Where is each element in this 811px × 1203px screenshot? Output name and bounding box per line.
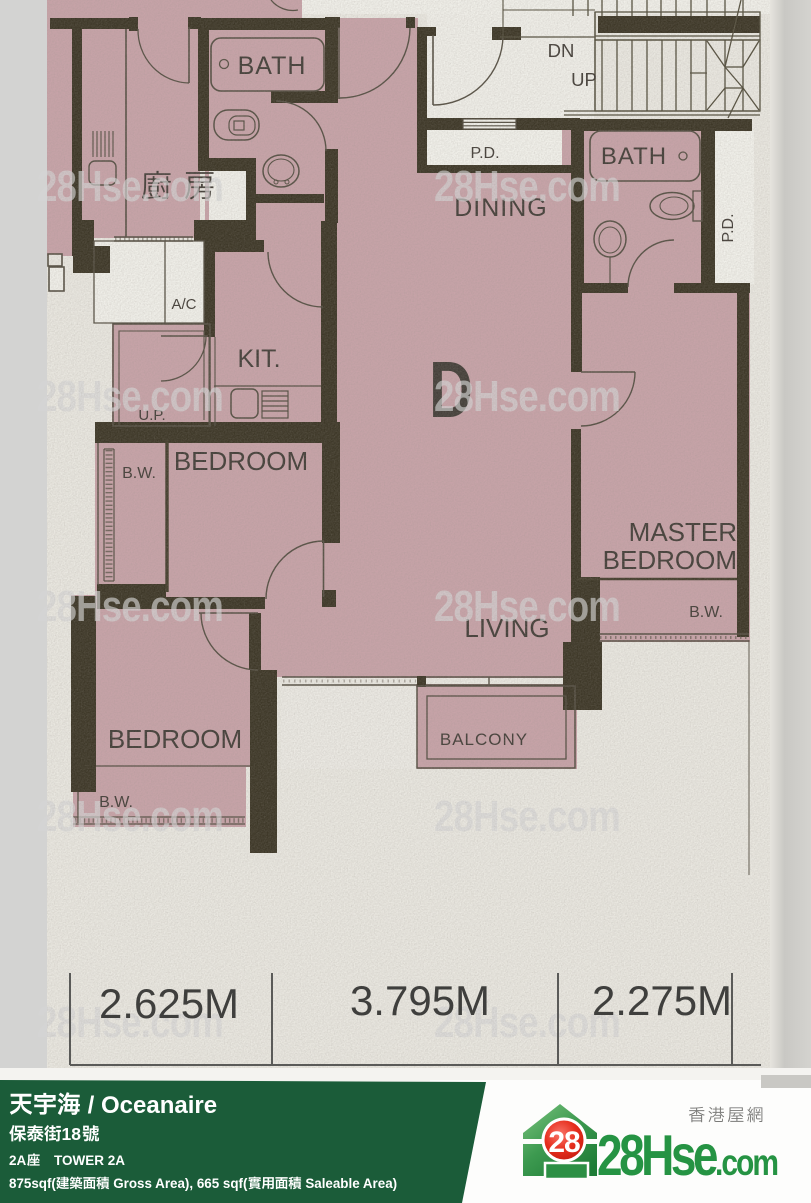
svg-text:875sqf(: 875sqf( — [9, 1176, 56, 1191]
svg-text:Gross Area), 665 sqf(: Gross Area), 665 sqf( — [110, 1176, 248, 1191]
svg-text:18: 18 — [62, 1124, 82, 1144]
svg-text:28: 28 — [548, 1126, 580, 1159]
svg-text:TOWER 2A: TOWER 2A — [54, 1153, 125, 1168]
svg-text:2.275M: 2.275M — [592, 977, 732, 1024]
svg-text:Saleable Area): Saleable Area) — [302, 1176, 398, 1191]
svg-text:/ Oceanaire: / Oceanaire — [81, 1092, 217, 1119]
svg-text:3.795M: 3.795M — [350, 977, 490, 1024]
svg-text:2A: 2A — [9, 1153, 27, 1168]
svg-text:2.625M: 2.625M — [99, 980, 239, 1027]
